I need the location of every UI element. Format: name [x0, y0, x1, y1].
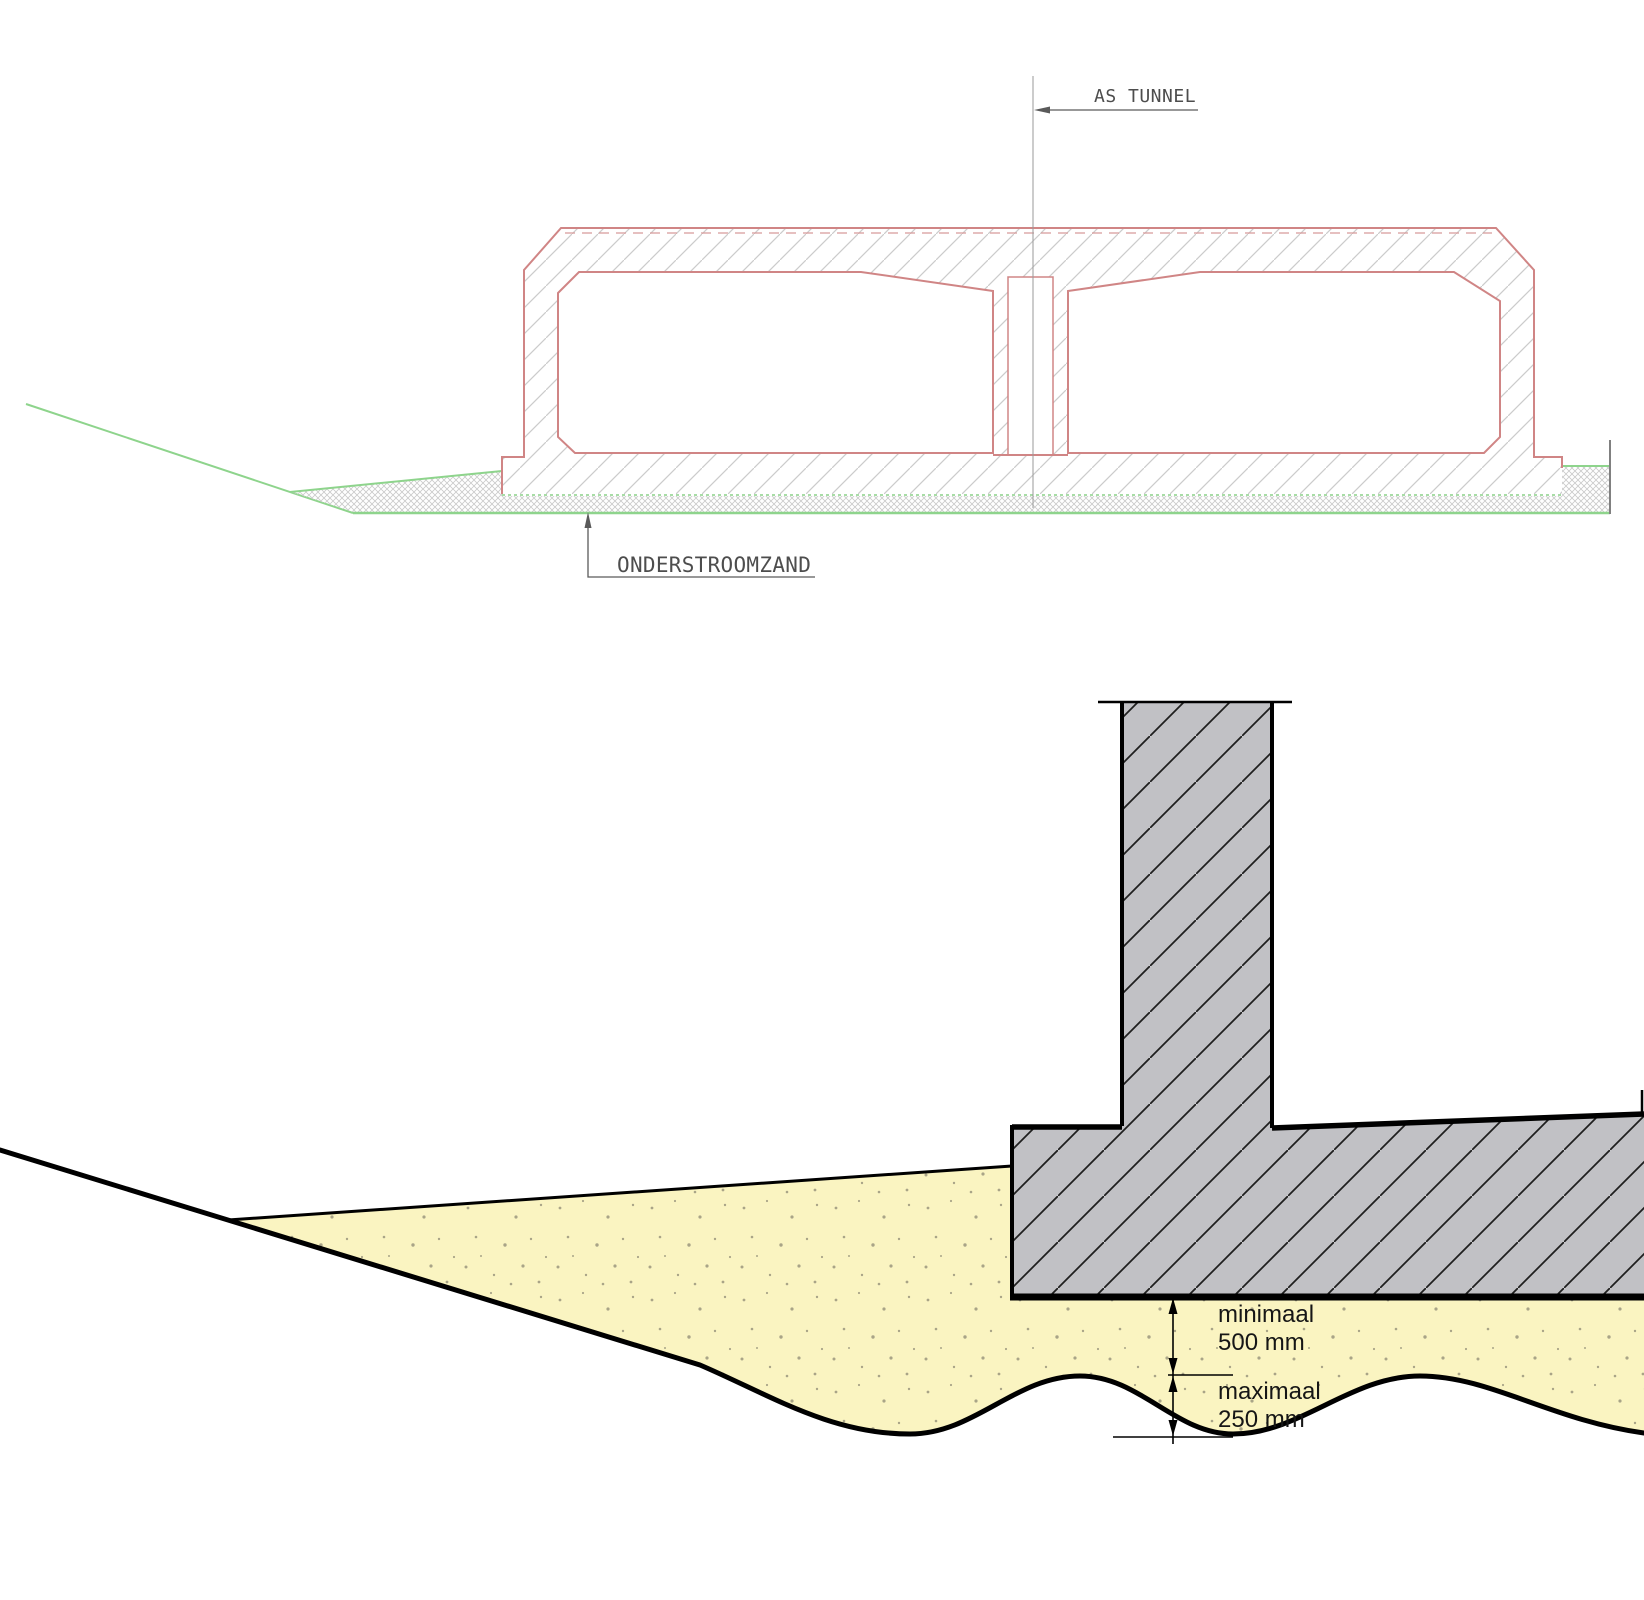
- axis-leader: [1034, 107, 1198, 114]
- dimension-minimum-label: minimaal: [1218, 1301, 1314, 1329]
- dimension-minimum-value: 500 mm: [1218, 1329, 1314, 1357]
- tunnel-center-joint: [1008, 277, 1053, 455]
- axis-leader-arrow-icon: [1034, 107, 1050, 114]
- axis-label: AS TUNNEL: [1094, 86, 1196, 107]
- dimension-maximum-value: 250 mm: [1218, 1406, 1321, 1434]
- dimension-maximum: maximaal 250 mm: [1218, 1378, 1321, 1434]
- drawing-canvas: [0, 0, 1644, 1600]
- tunnel-right-cell: [1068, 272, 1500, 453]
- dimension-maximum-label: maximaal: [1218, 1378, 1321, 1406]
- dimension-minimum: minimaal 500 mm: [1218, 1301, 1314, 1357]
- drawing-page: AS TUNNEL ONDERSTROOMZAND minimaal 500 m…: [0, 0, 1644, 1600]
- sand-wedge: [290, 471, 502, 512]
- ground-slope-line: [26, 404, 353, 513]
- tunnel-cross-section: [26, 76, 1610, 577]
- concrete-hatch: [1012, 702, 1644, 1297]
- dim-arrow-down2-icon: [1169, 1420, 1178, 1436]
- underflow-sand-label: ONDERSTROOMZAND: [617, 553, 811, 577]
- foundation-detail: [0, 702, 1644, 1444]
- tunnel-left-cell: [558, 272, 993, 453]
- sand-leader-arrow-icon: [585, 512, 592, 528]
